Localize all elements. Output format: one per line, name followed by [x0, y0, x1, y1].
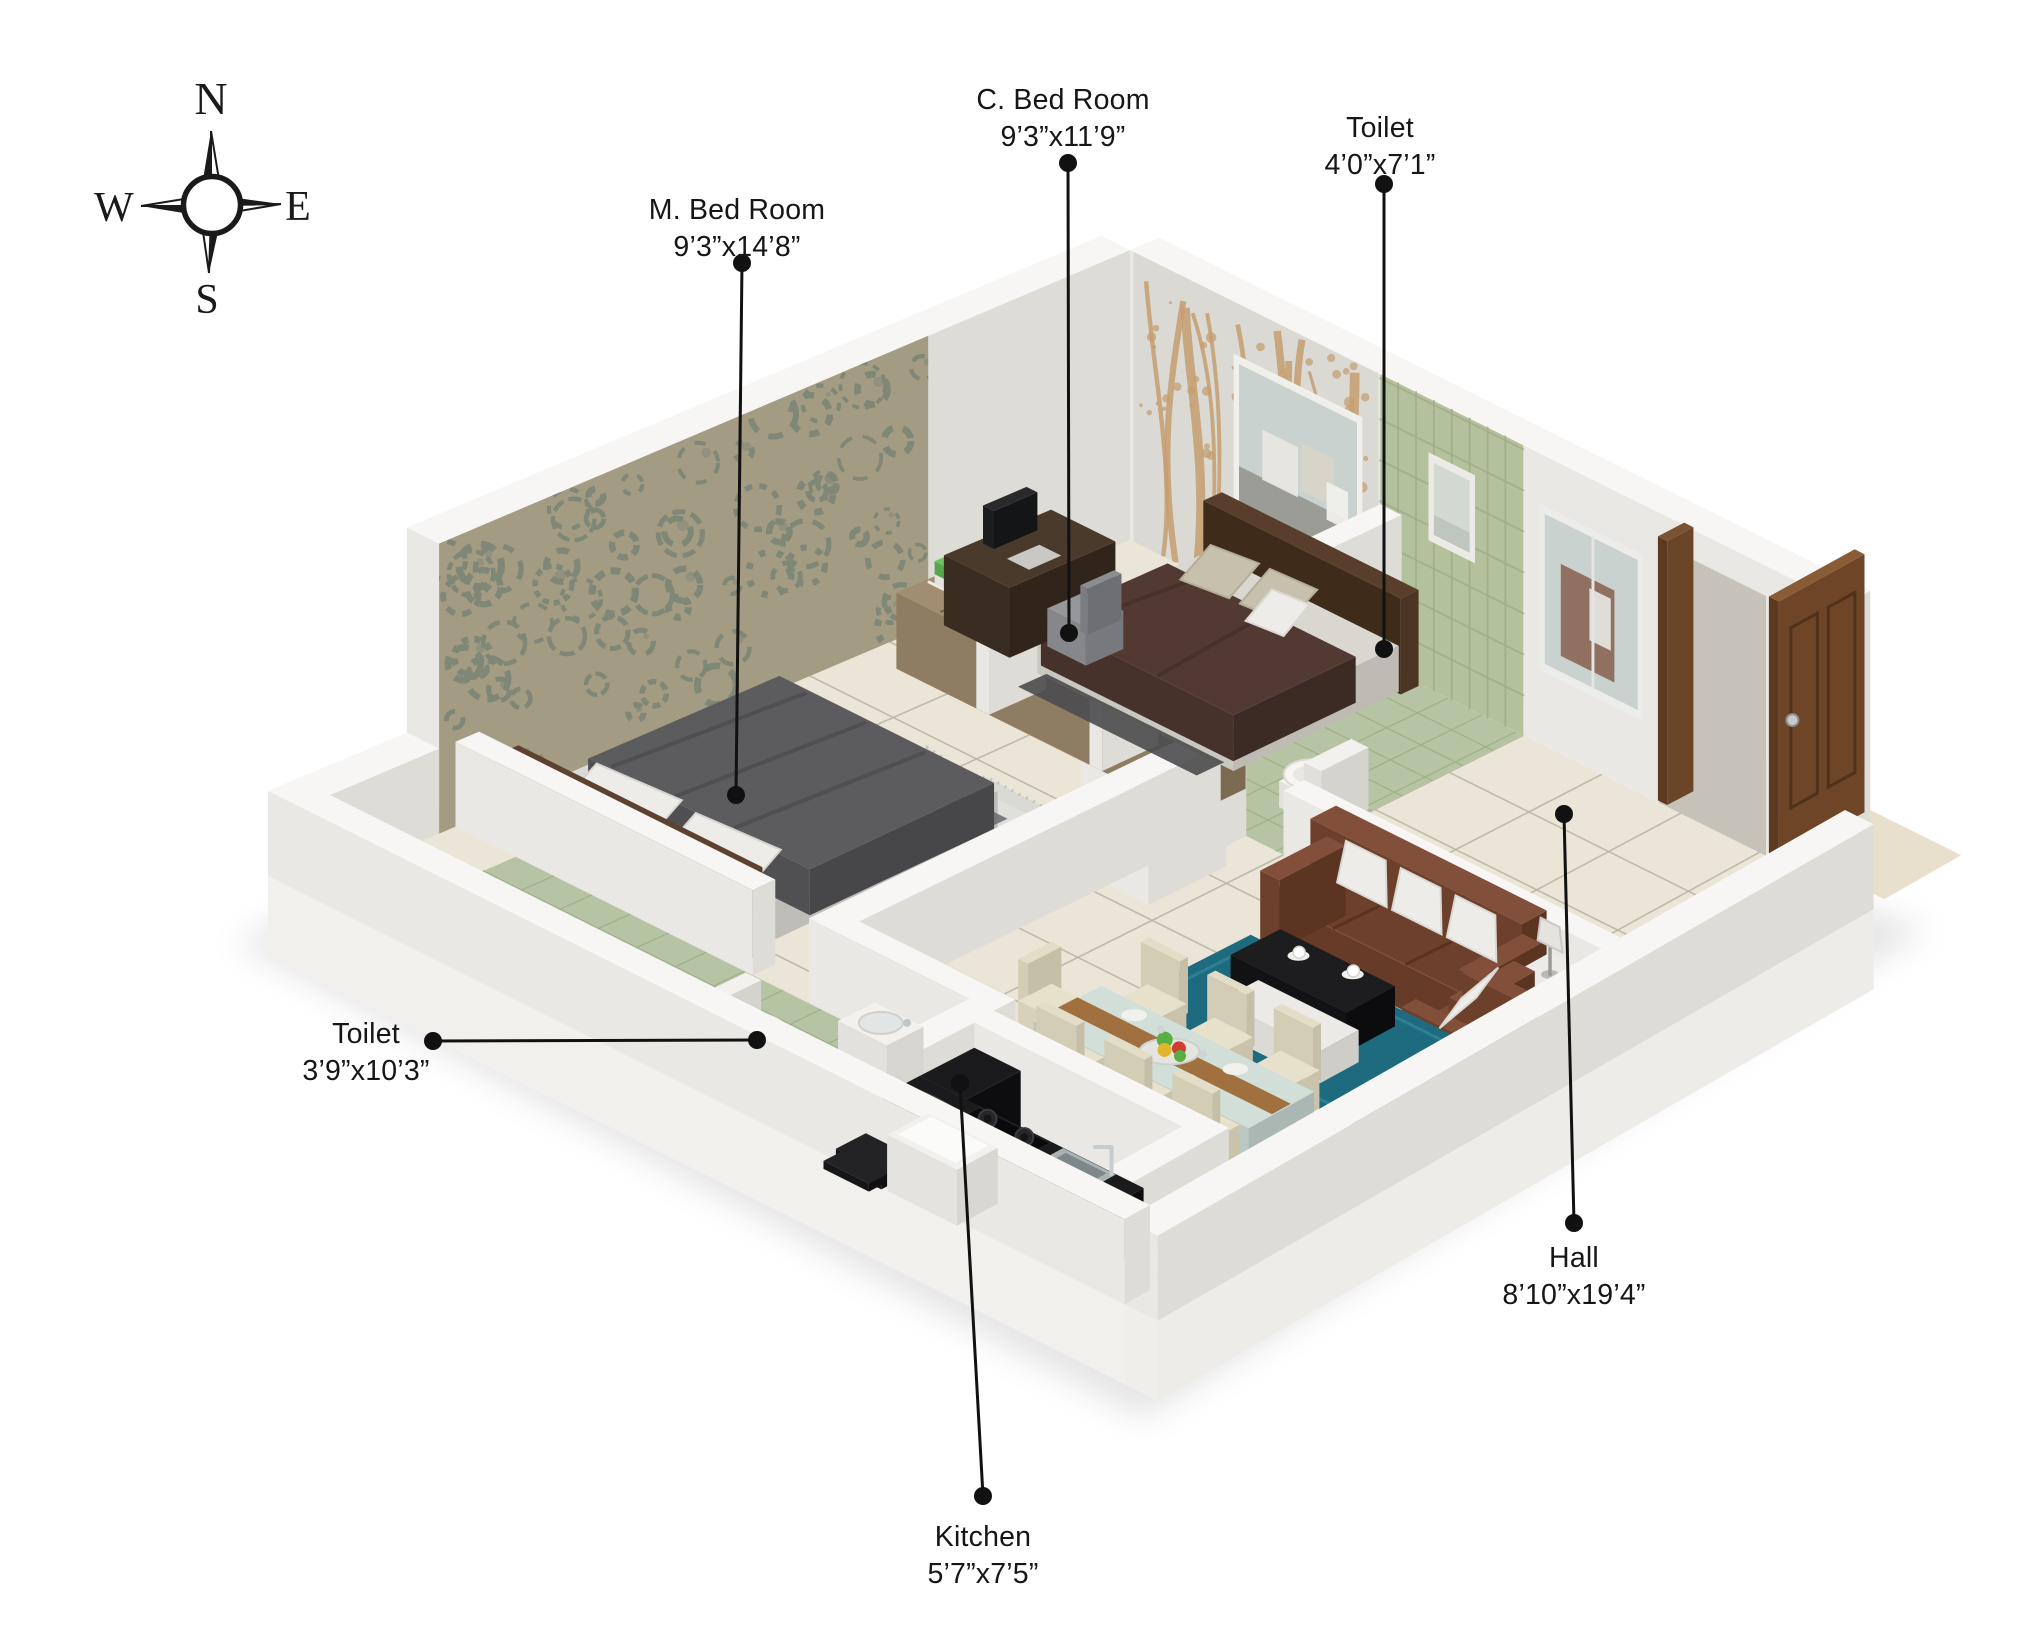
label-kitchen: Kitchen 5’7”x7’5”: [927, 1519, 1038, 1593]
leader-dot: [1060, 624, 1078, 642]
floor-plan-page: N E S W M. Bed Room 9’3”x14’8” C. Bed Ro…: [0, 0, 2029, 1627]
leader-dot: [974, 1487, 992, 1505]
label-m-bedroom-name: M. Bed Room: [649, 192, 825, 229]
label-toilet-left-dims: 3’9”x10’3”: [302, 1053, 429, 1090]
label-toilet-left-name: Toilet: [302, 1016, 429, 1053]
label-kitchen-name: Kitchen: [927, 1519, 1038, 1556]
label-hall: Hall 8’10”x19’4”: [1502, 1240, 1645, 1314]
leader-dot: [727, 786, 745, 804]
label-hall-dims: 8’10”x19’4”: [1502, 1277, 1645, 1314]
leader-dot: [1375, 640, 1393, 658]
label-toilet-top: Toilet 4’0”x7’1”: [1324, 110, 1435, 184]
label-kitchen-dims: 5’7”x7’5”: [927, 1556, 1038, 1593]
label-toilet-left: Toilet 3’9”x10’3”: [302, 1016, 429, 1090]
leader-dot: [951, 1074, 969, 1092]
compass-circle: [184, 177, 241, 234]
floor-plan-render: N E S W: [0, 0, 2029, 1627]
label-toilet-top-name: Toilet: [1324, 110, 1435, 147]
leader-dot: [1565, 1214, 1583, 1232]
label-toilet-top-dims: 4’0”x7’1”: [1324, 147, 1435, 184]
apartment-3d-scene: [237, 236, 1961, 1419]
label-c-bedroom: C. Bed Room 9’3”x11’9”: [976, 82, 1149, 156]
compass-s-letter: S: [195, 277, 218, 323]
compass-e-letter: E: [285, 184, 311, 230]
leader-dot: [748, 1031, 766, 1049]
label-m-bedroom: M. Bed Room 9’3”x14’8”: [649, 192, 825, 266]
leader-dot: [1059, 154, 1077, 172]
leader-dot: [1555, 805, 1573, 823]
label-c-bedroom-name: C. Bed Room: [976, 82, 1149, 119]
compass-w-letter: W: [94, 185, 134, 231]
compass-n-letter: N: [194, 73, 227, 124]
label-m-bedroom-dims: 9’3”x14’8”: [649, 229, 825, 266]
compass-rose: N E S W: [94, 73, 311, 323]
label-hall-name: Hall: [1502, 1240, 1645, 1277]
label-c-bedroom-dims: 9’3”x11’9”: [976, 119, 1149, 156]
